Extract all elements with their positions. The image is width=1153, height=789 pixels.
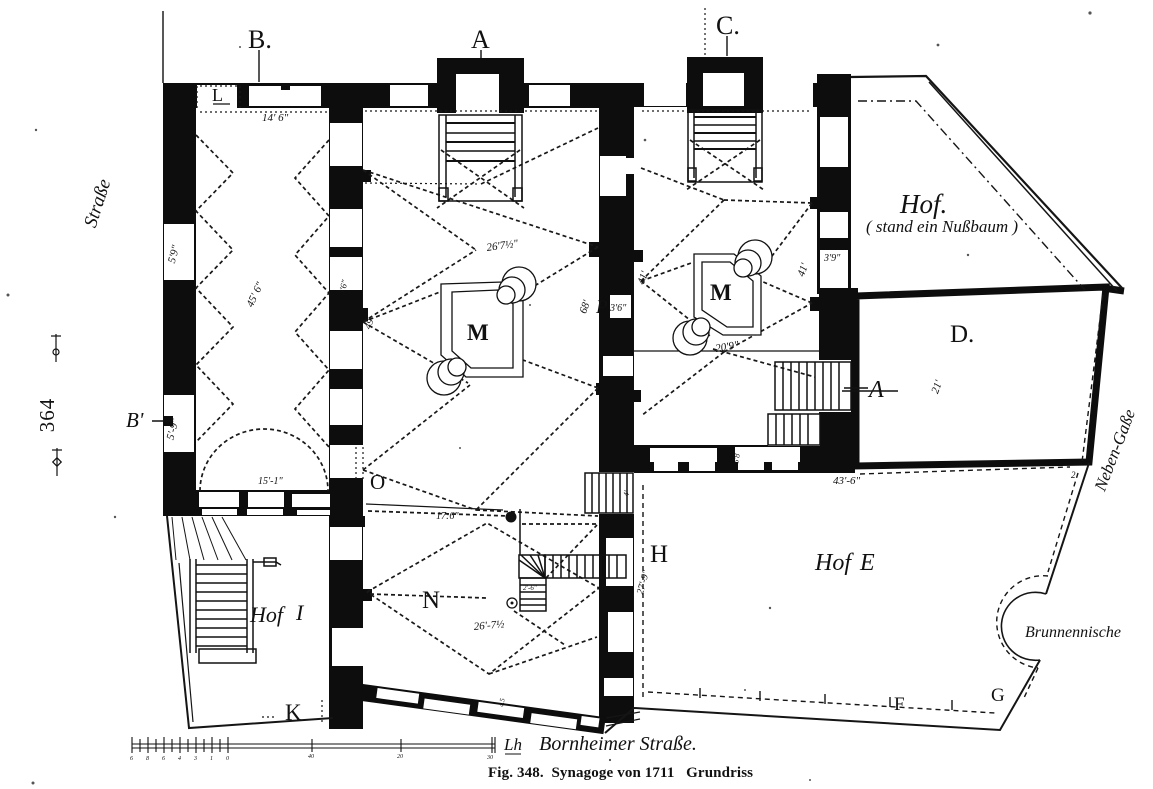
svg-text:M: M: [710, 280, 732, 305]
svg-text:L: L: [212, 85, 223, 105]
svg-text:A: A: [867, 377, 884, 403]
svg-text:4: 4: [178, 755, 181, 762]
svg-text:Hof: Hof: [814, 550, 854, 576]
svg-text:2: 2: [1071, 470, 1076, 480]
svg-text:40: 40: [308, 753, 314, 760]
svg-text:3'9": 3'9": [823, 253, 841, 264]
svg-text:O: O: [370, 470, 385, 494]
svg-text:A: A: [471, 25, 490, 54]
svg-text:K: K: [285, 700, 302, 725]
svg-text:P: P: [595, 297, 608, 318]
svg-text:G: G: [991, 685, 1005, 706]
svg-text:364: 364: [35, 398, 59, 433]
svg-text:6: 6: [130, 756, 133, 762]
svg-text:3: 3: [193, 756, 197, 762]
svg-text:Lh: Lh: [503, 735, 522, 754]
svg-text:5'8: 5'8: [731, 453, 742, 464]
svg-text:C.: C.: [716, 11, 740, 40]
svg-text:0: 0: [226, 756, 229, 762]
svg-text:( stand ein Nußbaum ): ( stand ein Nußbaum ): [866, 217, 1018, 236]
svg-text:Hof.: Hof.: [899, 189, 947, 219]
svg-text:1: 1: [210, 756, 213, 762]
svg-text:30: 30: [486, 755, 493, 761]
svg-text:M: M: [467, 320, 489, 345]
svg-text:3'6": 3'6": [609, 303, 627, 314]
svg-text:E: E: [859, 550, 875, 576]
svg-text:15'-1": 15'-1": [258, 476, 283, 487]
svg-text:8: 8: [146, 756, 149, 762]
svg-text:17:6": 17:6": [436, 511, 459, 522]
svg-text:Hof: Hof: [249, 602, 286, 627]
svg-text:14' 6": 14' 6": [262, 112, 289, 124]
svg-text:2'-6": 2'-6": [523, 584, 537, 592]
svg-text:D.: D.: [950, 321, 974, 348]
svg-text:Bornheimer Straße.: Bornheimer Straße.: [539, 733, 697, 755]
svg-text:Brunnennische: Brunnennische: [1025, 624, 1121, 641]
svg-text:F: F: [894, 694, 905, 715]
svg-text:B.: B.: [248, 25, 272, 54]
svg-text:N: N: [422, 587, 440, 614]
svg-text:H: H: [650, 541, 668, 568]
svg-text:B': B': [126, 408, 144, 432]
svg-text:20: 20: [397, 754, 403, 760]
svg-text:Fig. 348. Synagoge von 1711: Fig. 348. Synagoge von 1711 Grundriss: [488, 765, 753, 781]
svg-text:6: 6: [162, 756, 165, 762]
svg-text:43'-6": 43'-6": [833, 475, 861, 487]
